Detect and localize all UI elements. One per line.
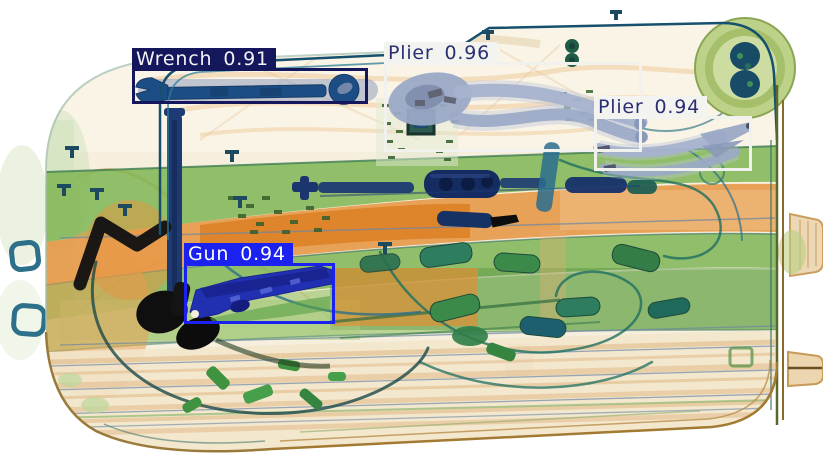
detection-label-plier-1: Plier0.96 [384, 42, 497, 65]
detection-confidence-score: 0.94 [240, 243, 286, 265]
detection-confidence-score: 0.96 [445, 42, 491, 64]
detection-class-name: Plier [598, 96, 644, 118]
detection-overlay: Wrench0.91Plier0.96Plier0.94Gun0.94 [0, 0, 823, 470]
detection-class-name: Wrench [136, 48, 212, 70]
detection-label-plier-2: Plier0.94 [594, 96, 707, 119]
detection-label-gun: Gun0.94 [184, 243, 293, 266]
detection-box-plier-2: Plier0.94 [594, 116, 752, 171]
detection-box-gun: Gun0.94 [184, 263, 335, 324]
xray-screenshot: Wrench0.91Plier0.96Plier0.94Gun0.94 [0, 0, 823, 470]
detection-confidence-score: 0.94 [655, 96, 701, 118]
detection-confidence-score: 0.91 [223, 48, 269, 70]
detection-class-name: Gun [188, 243, 229, 265]
detection-label-wrench: Wrench0.91 [132, 48, 276, 71]
detection-box-wrench: Wrench0.91 [132, 68, 368, 104]
detection-class-name: Plier [388, 42, 434, 64]
